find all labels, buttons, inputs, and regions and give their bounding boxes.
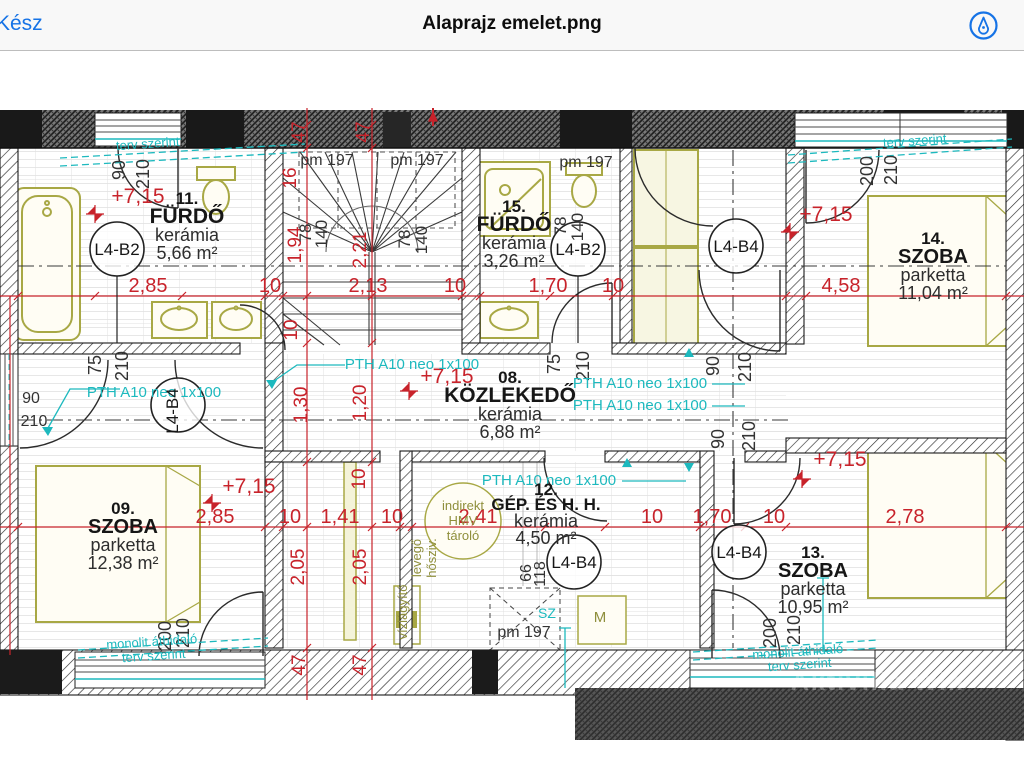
file-title: Alaprajz emelet.png (0, 13, 1024, 35)
dimension-label: 47 (289, 654, 310, 675)
plan-label: 210 (133, 159, 153, 189)
annotation-label: SZ (538, 605, 556, 621)
dimension-label: 2,21 (350, 232, 371, 269)
plan-label: 210 (112, 351, 132, 381)
dimension-label: +7,15 (222, 475, 275, 498)
room-type-tag-label: L4-B2 (555, 240, 600, 259)
dimension-label: 10 (444, 275, 466, 297)
plan-label: 140 (412, 226, 431, 254)
dimension-label: 10 (763, 506, 785, 528)
plan-label: 90 (22, 390, 40, 407)
annotation-label: PTH A10 neo 1x100 (573, 375, 707, 392)
plan-label: tároló (447, 528, 480, 543)
plan-label: 75 (544, 354, 564, 374)
plan-label: 210 (735, 352, 755, 382)
room-area: 3,26 m² (483, 251, 544, 271)
dimension-label: 1,20 (350, 385, 371, 422)
room-finish: parketta (90, 535, 156, 555)
plan-label: M (594, 609, 607, 626)
plan-label: 90 (708, 429, 728, 449)
plan-label: levegő (409, 539, 424, 577)
dimension-label: 2,13 (349, 275, 388, 297)
dimension-label: 47 (289, 121, 310, 142)
plan-label: pm 197 (559, 154, 612, 171)
plan-label: pm 197 (497, 624, 550, 641)
room-area: 6,88 m² (479, 422, 540, 442)
dimension-label: 1,30 (291, 387, 312, 424)
watermark: Aktivilla Win (791, 668, 965, 696)
plan-label: vízlágyító (395, 585, 410, 640)
room-finish: kerámia (482, 233, 547, 253)
annotation-label: PTH A10 neo 1x100 (573, 397, 707, 414)
dimension-label: 1,41 (321, 506, 360, 528)
annotation-label: PTH A10 neo 1x100 (345, 356, 479, 373)
dimension-label: 47 (350, 654, 371, 675)
room-finish: kerámia (478, 404, 543, 424)
plan-label: 140 (312, 220, 331, 248)
dimension-label: 1,70 (693, 506, 732, 528)
markup-button[interactable] (968, 10, 999, 41)
plan-label: 210 (784, 615, 804, 645)
window-left-wall (0, 354, 18, 446)
room-type-tag-label: L4-B2 (94, 240, 139, 259)
dimension-label: 2,85 (196, 506, 235, 528)
dimension-label: 2,05 (350, 549, 371, 586)
dimension-label: +7,15 (799, 203, 852, 226)
room-area: 10,95 m² (777, 597, 848, 617)
dimension-label: 16 (280, 167, 301, 188)
room-area: 11,04 m² (898, 283, 968, 303)
plan-label: 90 (109, 160, 129, 180)
plan-label: 140 (568, 213, 587, 241)
markup-pen-icon (968, 10, 999, 41)
dimension-label: 1,70 (529, 275, 568, 297)
room-finish: kerámia (155, 225, 220, 245)
room-type-tag-label: L4-B4 (716, 543, 761, 562)
plan-label: 200 (760, 618, 780, 648)
plan-label: pm 197 (390, 152, 443, 169)
room-area: 4,50 m² (515, 528, 576, 548)
dimension-label: 10 (381, 506, 403, 528)
plan-label: 200 (857, 156, 877, 186)
annotation-label: PTH A10 neo 1x100 (87, 384, 221, 401)
plan-label: indirekt (442, 498, 484, 513)
plan-label: hősziv. (424, 538, 439, 578)
room-type-tag-label: L4-B4 (551, 553, 596, 572)
dimension-label: 10 (349, 468, 370, 489)
plan-label: pm 197 (300, 152, 353, 169)
dimension-label: 2,78 (886, 506, 925, 528)
file-preview-area[interactable]: 2,85102,13101,70104,582,85101,41102,4110… (0, 0, 1024, 768)
preview-toolbar: Kész Alaprajz emelet.png (0, 0, 1024, 51)
plan-label: 118 (532, 561, 549, 587)
room-type-tag-label: L4-B4 (163, 388, 182, 433)
room-area: 5,66 m² (156, 243, 217, 263)
plan-label: 210 (881, 155, 901, 185)
plan-label: 210 (739, 421, 759, 451)
plan-label: 90 (703, 356, 723, 376)
room-finish: parketta (780, 579, 846, 599)
room-area: 12,38 m² (87, 553, 158, 573)
floorplan-image[interactable]: 2,85102,13101,70104,582,85101,41102,4110… (0, 0, 1024, 768)
dimension-label: +7,15 (813, 448, 866, 471)
dimension-label: 10 (602, 275, 624, 297)
dimension-label: 2,05 (288, 549, 309, 586)
dimension-label: 10 (259, 275, 281, 297)
plan-label: HMV (449, 513, 478, 528)
plan-label: 210 (21, 413, 48, 430)
dimension-label: 2,85 (129, 275, 168, 297)
room-type-tag-label: L4-B4 (713, 237, 758, 256)
dimension-label: 10 (279, 506, 301, 528)
dimension-label: 10 (641, 506, 663, 528)
dimension-label: 4,58 (822, 275, 861, 297)
plan-label: 75 (85, 355, 105, 375)
dimension-label: 47 (353, 121, 374, 142)
room-finish: parketta (900, 265, 966, 285)
dimension-label: 10 (281, 319, 302, 340)
